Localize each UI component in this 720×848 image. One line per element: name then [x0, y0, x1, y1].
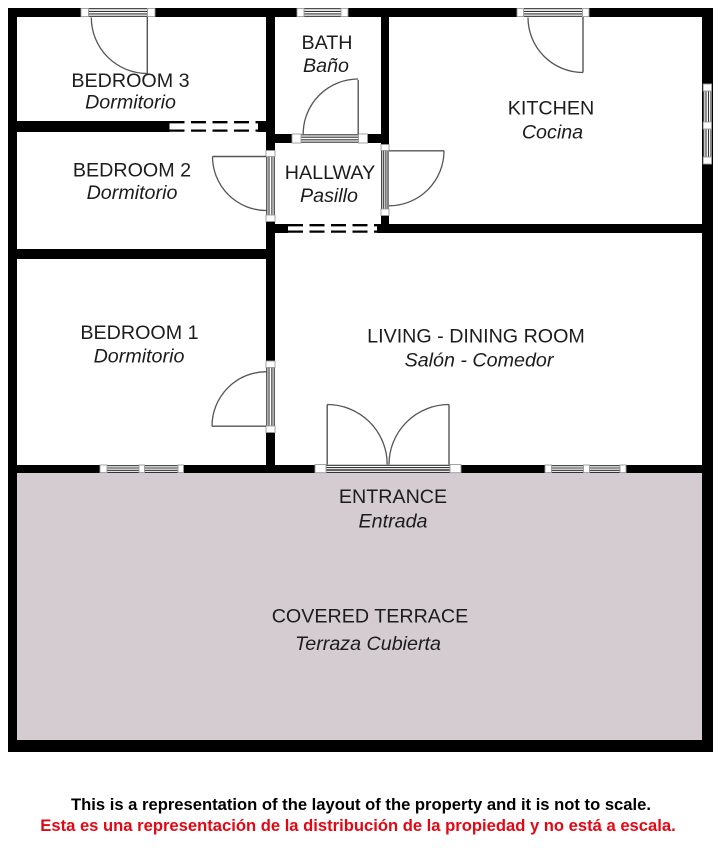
svg-text:BEDROOM 2: BEDROOM 2: [73, 160, 191, 182]
svg-text:BEDROOM 1: BEDROOM 1: [80, 322, 198, 344]
svg-text:BEDROOM 3: BEDROOM 3: [71, 70, 189, 92]
svg-text:Dormitorio: Dormitorio: [85, 92, 176, 114]
svg-text:This is a representation of th: This is a representation of the layout o…: [71, 795, 651, 814]
svg-text:Cocina: Cocina: [522, 122, 583, 144]
svg-text:Dormitorio: Dormitorio: [87, 182, 178, 204]
svg-text:BATH: BATH: [301, 32, 352, 54]
svg-text:ENTRANCE: ENTRANCE: [339, 486, 447, 508]
svg-text:KITCHEN: KITCHEN: [508, 98, 594, 120]
svg-text:Esta es una representación de: Esta es una representación de la distrib…: [40, 816, 675, 835]
svg-text:COVERED TERRACE: COVERED TERRACE: [272, 606, 469, 628]
svg-text:HALLWAY: HALLWAY: [285, 162, 375, 184]
svg-text:Pasillo: Pasillo: [300, 185, 358, 207]
svg-text:Terraza Cubierta: Terraza Cubierta: [295, 633, 441, 655]
svg-text:Salón - Comedor: Salón - Comedor: [405, 350, 555, 372]
svg-text:Dormitorio: Dormitorio: [94, 346, 185, 368]
svg-text:Entrada: Entrada: [359, 511, 428, 533]
svg-text:Baño: Baño: [303, 55, 349, 77]
svg-text:LIVING - DINING ROOM: LIVING - DINING ROOM: [367, 326, 585, 348]
